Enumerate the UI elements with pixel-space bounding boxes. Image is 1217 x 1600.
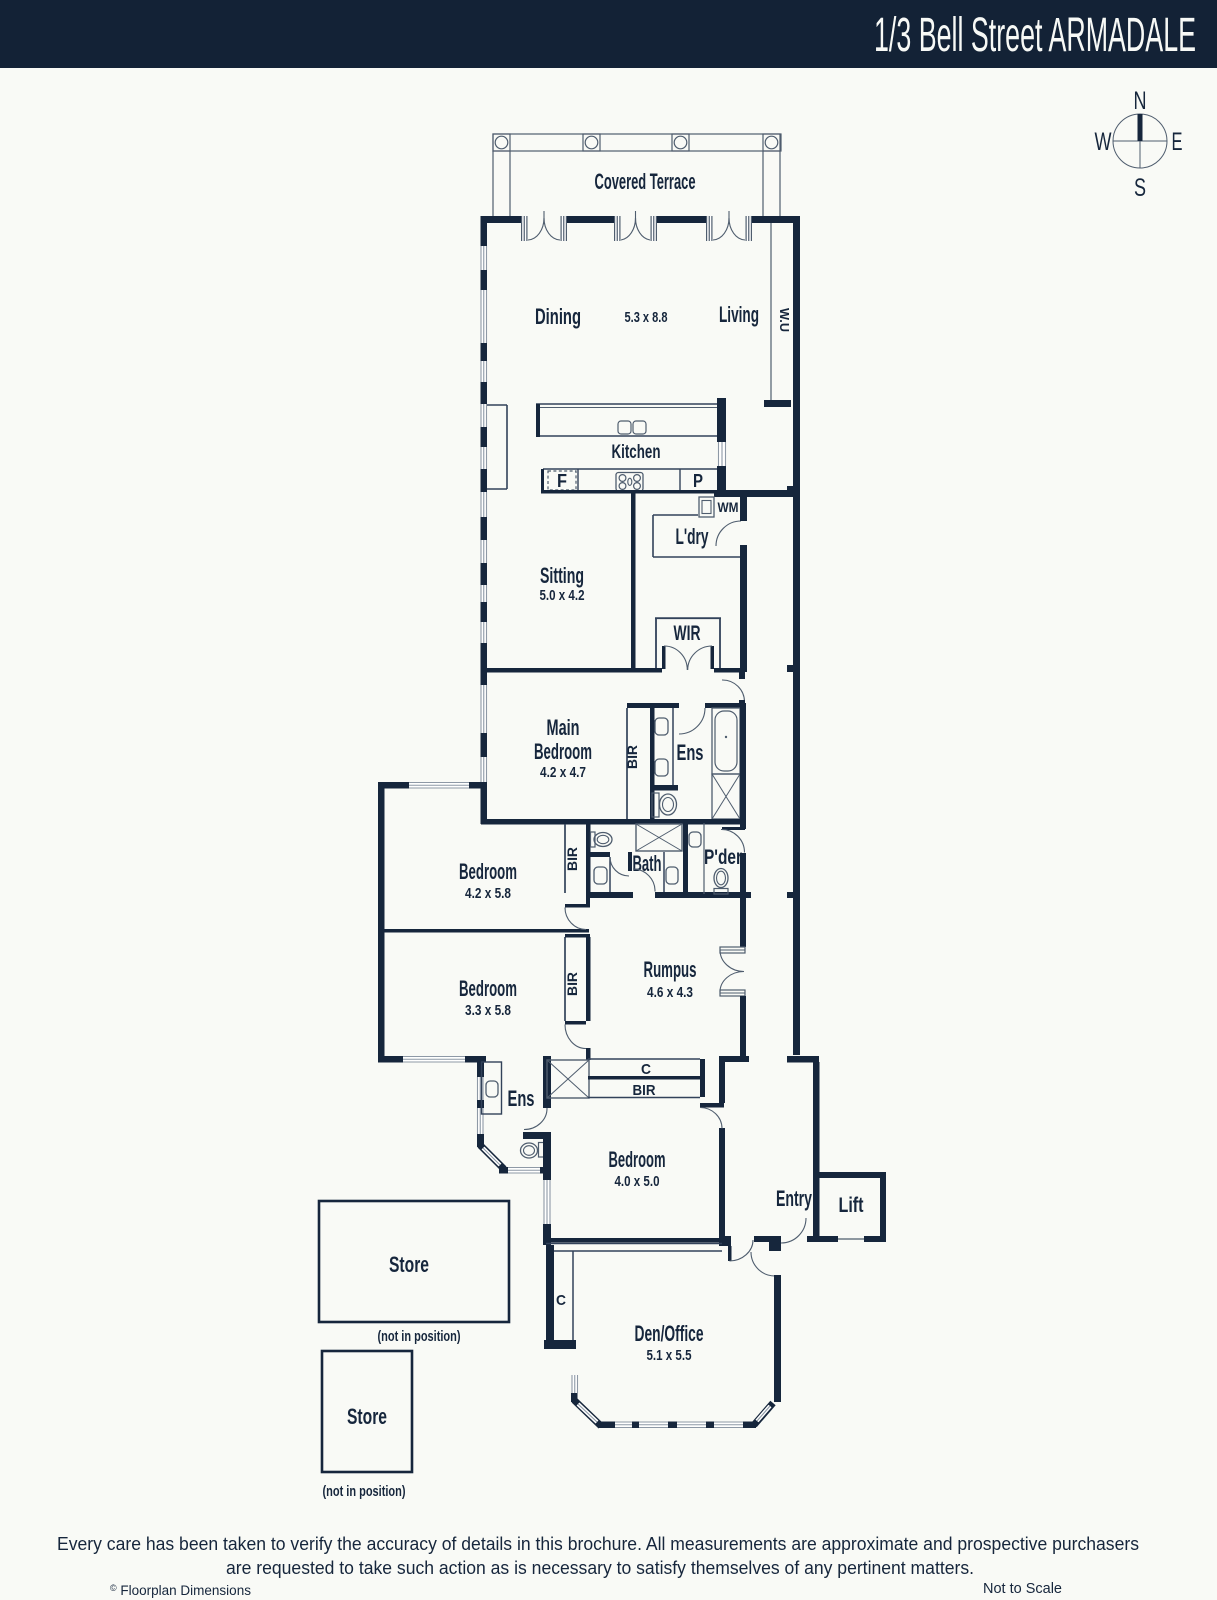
svg-text:Store: Store [347, 1404, 387, 1429]
svg-text:(not in position): (not in position) [323, 1484, 406, 1500]
svg-text:5.1 x 5.5: 5.1 x 5.5 [647, 1348, 692, 1364]
svg-text:Lift: Lift [839, 1194, 864, 1217]
svg-text:C: C [556, 1292, 566, 1309]
svg-text:Bedroom: Bedroom [534, 739, 592, 764]
svg-text:WM: WM [718, 499, 739, 515]
svg-text:N: N [1134, 87, 1147, 115]
svg-text:1/3 Bell Street ARMADALE: 1/3 Bell Street ARMADALE [874, 9, 1196, 62]
svg-text:Ens: Ens [677, 740, 704, 765]
svg-text:C: C [641, 1061, 651, 1078]
svg-text:BIR: BIR [565, 972, 580, 996]
svg-text:Kitchen: Kitchen [612, 441, 661, 463]
svg-text:Every care has been taken to v: Every care has been taken to verify the … [57, 1533, 1139, 1554]
svg-text:BIR: BIR [633, 1082, 656, 1099]
svg-text:P: P [693, 471, 703, 491]
svg-text:Living: Living [719, 302, 759, 327]
svg-text:4.2 x 4.7: 4.2 x 4.7 [540, 765, 586, 781]
svg-text:Main: Main [547, 715, 580, 740]
svg-text:S: S [1134, 174, 1146, 202]
svg-text:BIR: BIR [565, 847, 580, 871]
svg-text:F: F [557, 471, 567, 491]
svg-text:4.2 x 5.8: 4.2 x 5.8 [465, 886, 511, 902]
svg-text:Bedroom: Bedroom [609, 1147, 666, 1172]
svg-text:Bedroom: Bedroom [459, 976, 517, 1001]
svg-text:4.0 x 5.0: 4.0 x 5.0 [615, 1174, 660, 1190]
svg-text:4.6 x 4.3: 4.6 x 4.3 [647, 985, 693, 1001]
svg-text:Store: Store [389, 1252, 429, 1277]
svg-text:Covered Terrace: Covered Terrace [595, 169, 696, 194]
svg-text:3.3 x 5.8: 3.3 x 5.8 [465, 1003, 511, 1019]
svg-text:Entry: Entry [776, 1186, 812, 1211]
svg-text:5.0 x 4.2: 5.0 x 4.2 [540, 588, 585, 604]
svg-text:Bath: Bath [633, 851, 662, 876]
svg-text:Sitting: Sitting [540, 563, 584, 588]
svg-text:Den/Office: Den/Office [635, 1321, 704, 1346]
svg-text:WIR: WIR [674, 622, 701, 645]
svg-text:are requested to take such act: are requested to take such action as is … [226, 1557, 974, 1578]
svg-text:5.3 x 8.8: 5.3 x 8.8 [625, 310, 668, 326]
svg-text:Dining: Dining [535, 304, 581, 329]
svg-text:Rumpus: Rumpus [644, 957, 697, 982]
svg-text:Bedroom: Bedroom [459, 859, 517, 884]
svg-text:W.U: W.U [777, 308, 791, 332]
svg-text:W: W [1095, 128, 1112, 156]
svg-text:© Floorplan Dimensions: © Floorplan Dimensions [110, 1583, 251, 1598]
svg-text:Ens: Ens [508, 1086, 535, 1111]
svg-text:P'der: P'der [704, 846, 742, 869]
svg-text:Not to Scale: Not to Scale [983, 1581, 1062, 1597]
svg-text:L'dry: L'dry [676, 524, 709, 549]
svg-text:E: E [1172, 128, 1183, 156]
svg-text:BIR: BIR [625, 745, 640, 769]
svg-text:(not in position): (not in position) [378, 1329, 461, 1345]
